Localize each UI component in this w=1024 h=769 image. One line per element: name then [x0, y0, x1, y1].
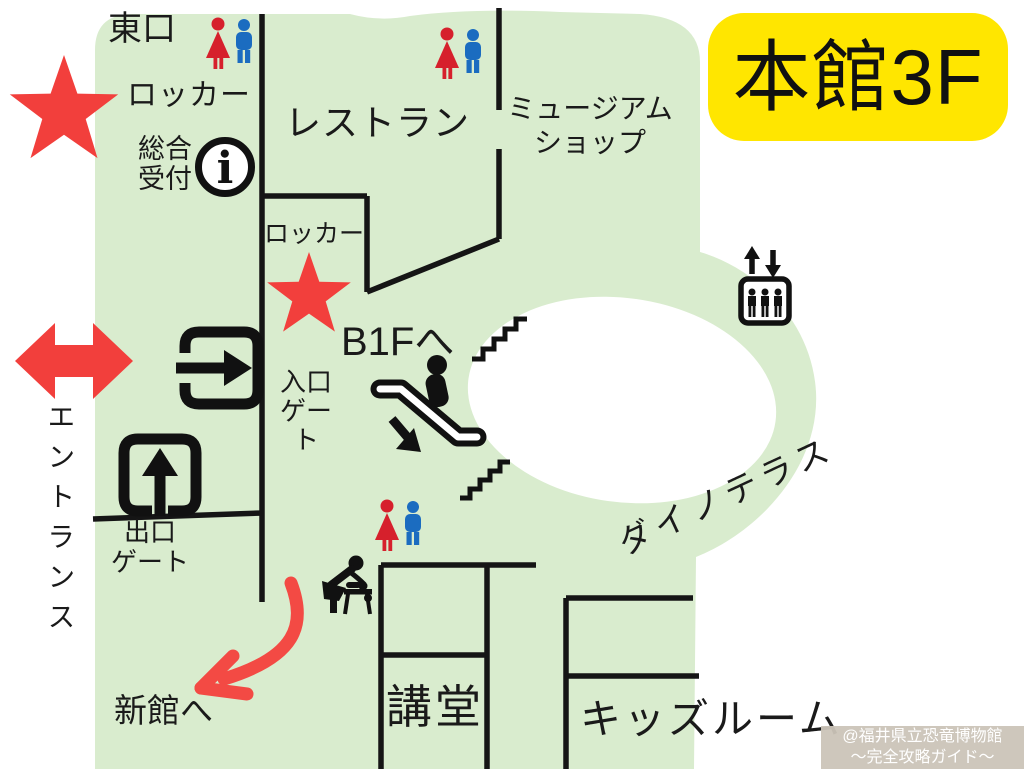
- label-entry-gate: 入口 ゲート: [268, 368, 344, 455]
- label-to-b1f: B1Fへ: [341, 320, 454, 365]
- label-reception-line1: 総合: [133, 134, 197, 164]
- watermark-line2: ～完全攻略ガイド～: [821, 748, 1024, 769]
- label-museum-shop-line2: ショップ: [502, 126, 678, 160]
- label-exit-gate-line2: ゲート: [108, 547, 192, 577]
- label-museum-shop: ミュージアム ショップ: [502, 92, 678, 160]
- watermark: @福井県立恐竜博物館 ～完全攻略ガイド～: [821, 726, 1024, 769]
- label-locker-top: ロッカー: [127, 79, 251, 113]
- label-locker-mid: ロッカー: [264, 220, 364, 248]
- label-museum-shop-line1: ミュージアム: [502, 92, 678, 126]
- elevator-icon: [741, 246, 789, 323]
- watermark-line1: @福井県立恐竜博物館: [821, 727, 1024, 748]
- info-icon: i: [199, 141, 252, 195]
- label-restaurant: レストラン: [285, 103, 470, 143]
- floor-badge: 本館3F: [708, 13, 1008, 141]
- label-exit-gate-line1: 出口: [108, 517, 192, 547]
- label-auditorium: 講堂: [386, 682, 484, 734]
- label-kids-room: キッズルーム: [580, 697, 843, 743]
- label-to-new-building: 新館へ: [114, 693, 213, 730]
- label-entry-gate-line2: ゲート: [268, 397, 344, 455]
- label-exit-gate: 出口 ゲート: [108, 517, 192, 577]
- svg-text:i: i: [217, 143, 234, 194]
- label-entrance: エントランス: [44, 402, 75, 642]
- label-reception: 総合 受付: [133, 134, 197, 194]
- floor-map-3f: i: [0, 0, 1024, 769]
- label-entry-gate-line1: 入口: [268, 368, 344, 397]
- label-reception-line2: 受付: [133, 164, 197, 194]
- label-east-exit: 東口: [108, 10, 176, 48]
